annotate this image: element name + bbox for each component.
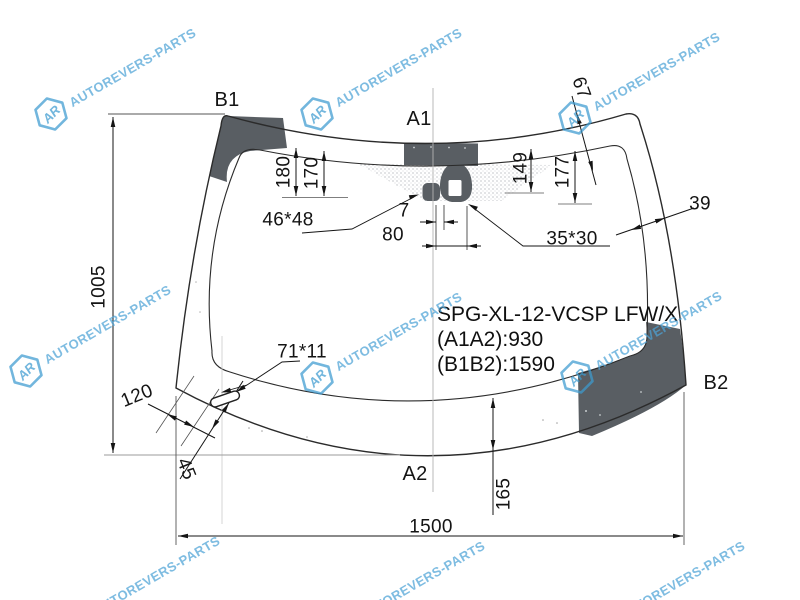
dim-180-label: 180 [275,156,294,189]
dim-80-label: 80 [382,226,404,245]
mirror-button [423,183,441,201]
dim-1500-label: 1500 [409,518,452,537]
corner-label-a1: A1 [406,109,431,129]
dim-46x48-label: 46*48 [262,211,313,230]
dim-1005-lines [111,117,116,453]
corner-label-b1: B1 [214,90,239,110]
vin-slot [209,390,240,408]
dim-67-lines [572,96,596,185]
dim-170-label: 170 [303,157,322,190]
dim-165-label: 165 [495,478,514,511]
dim-35x30-label: 35*30 [546,230,597,249]
corner-label-b2: B2 [703,373,728,393]
dim-1005-label: 1005 [90,265,109,308]
dim-7-label: 7 [399,202,410,221]
part-dim-b1b2: (B1B2):1590 [437,352,678,377]
part-code: SPG-XL-12-VCSP LFW/X [437,302,678,327]
dim-120-lines [148,404,215,438]
part-dim-a1a2: (A1A2):930 [437,327,678,352]
dim-39-label: 39 [689,195,711,214]
dim-177-label: 177 [554,156,573,189]
windshield-diagram-page: B1 A1 B2 A2 1005 1500 180 170 149 177 67… [0,0,800,600]
dim-149-label: 149 [512,152,531,185]
dim-39-lines [616,208,694,235]
dim-71x11-label: 71*11 [277,343,327,362]
windshield-drawing [0,0,800,600]
sensor-window [449,180,462,196]
sensor-cover-band [404,143,478,167]
dim-7-80-lines [420,220,481,248]
corner-label-a2: A2 [402,464,427,484]
part-info: SPG-XL-12-VCSP LFW/X (A1A2):930 (B1B2):1… [437,302,678,377]
